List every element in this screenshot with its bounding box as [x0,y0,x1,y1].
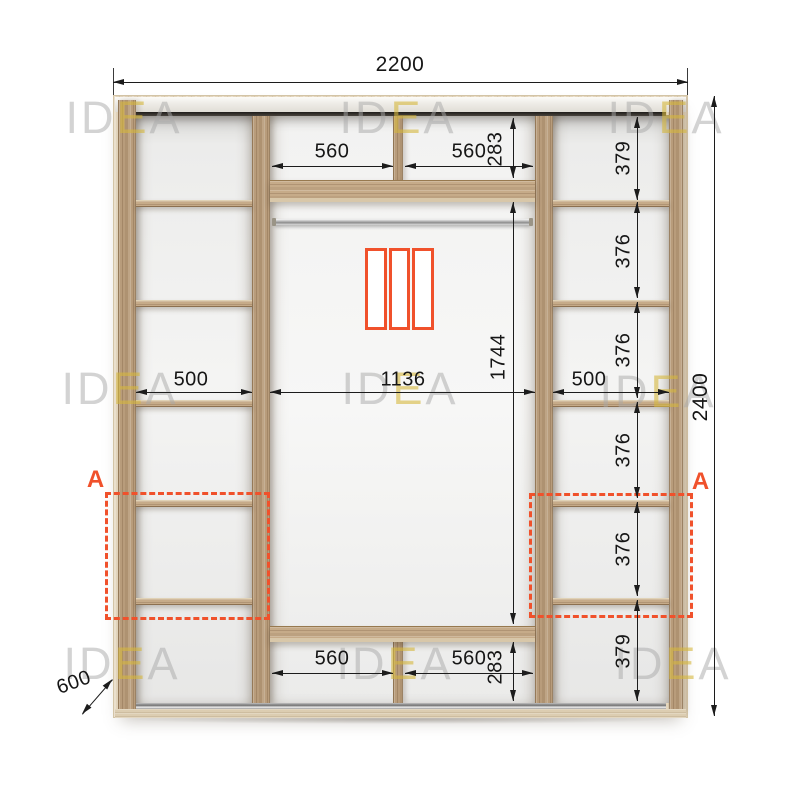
dim-top-cell-left-label: 560 [315,141,350,164]
idea-watermark: IDEA [65,92,182,144]
idea-watermark: IDEA [336,638,453,690]
dim-line-right-cell-3 [637,302,638,398]
cabinet-bottom-panel [115,709,686,718]
dim-top-row-height-label: 283 [485,132,508,167]
dim-right-cell-5-label: 376 [613,532,636,567]
dim-middle-width-label: 1136 [380,369,425,392]
left-shelf-2 [136,300,252,307]
dim-line-right-cell-6 [637,600,638,701]
door-panel-2 [389,248,411,330]
dim-line-right-cell-1 [637,117,638,200]
dim-line-overall-height [714,96,715,716]
idea-watermark: IDEA [339,92,456,144]
dim-overall-height-label: 2400 [689,373,713,422]
dim-right-cell-6-label: 379 [613,634,636,669]
right-shelf-2 [553,300,669,307]
door-panel-1 [365,248,387,330]
door-panel-3 [412,248,434,330]
dim-bottom-cell-right-label: 560 [452,648,487,671]
dim-line-middle-width [270,392,535,393]
section-a-marker-left: A [87,466,105,494]
dim-right-cell-4-label: 376 [613,433,636,468]
dim-line-top-row-height [513,118,514,178]
hanging-rod [274,219,531,225]
dim-left-column-width-label: 500 [174,369,209,392]
section-a-zone-right [529,493,693,618]
dim-right-cell-1-label: 379 [613,141,636,176]
dim-depth-label: 600 [54,666,95,700]
idea-watermark: IDEA [607,92,724,144]
dim-bottom-row-height-label: 283 [485,650,508,685]
wardrobe-dimension-diagram: A A 2200 2400 600 560 560 283 1744 283 5… [0,0,800,800]
idea-watermark: IDEA [61,363,178,415]
right-shelf-1 [553,200,669,207]
dim-line-right-cell-2 [637,202,638,298]
dim-line-bottom-cell-right [405,673,533,674]
section-a-zone-left [105,492,270,620]
dim-right-cell-2-label: 376 [613,234,636,269]
dim-bottom-cell-left-label: 560 [315,648,350,671]
sliding-doors-icon [365,248,434,330]
dim-line-right-column-width [553,392,669,393]
dim-line-bottom-cell-left [272,673,393,674]
dim-line-left-column-width [136,392,252,393]
dim-line-hang-zone [513,202,514,624]
section-a-marker-right: A [692,468,710,496]
dim-line-right-cell-5 [637,502,638,596]
dim-right-cell-3-label: 376 [613,333,636,368]
dim-hang-zone-label: 1744 [488,334,511,381]
left-shelf-1 [136,200,252,207]
dim-overall-width-label: 2200 [376,53,425,77]
dim-line-right-cell-4 [637,402,638,498]
dim-right-column-width-label: 500 [572,369,607,392]
middle-top-shelf [270,180,535,202]
dim-top-cell-right-label: 560 [452,141,487,164]
dim-line-bottom-row-height [513,642,514,701]
dim-line-overall-width [113,82,688,83]
dim-line-top-cell-left [272,166,393,167]
